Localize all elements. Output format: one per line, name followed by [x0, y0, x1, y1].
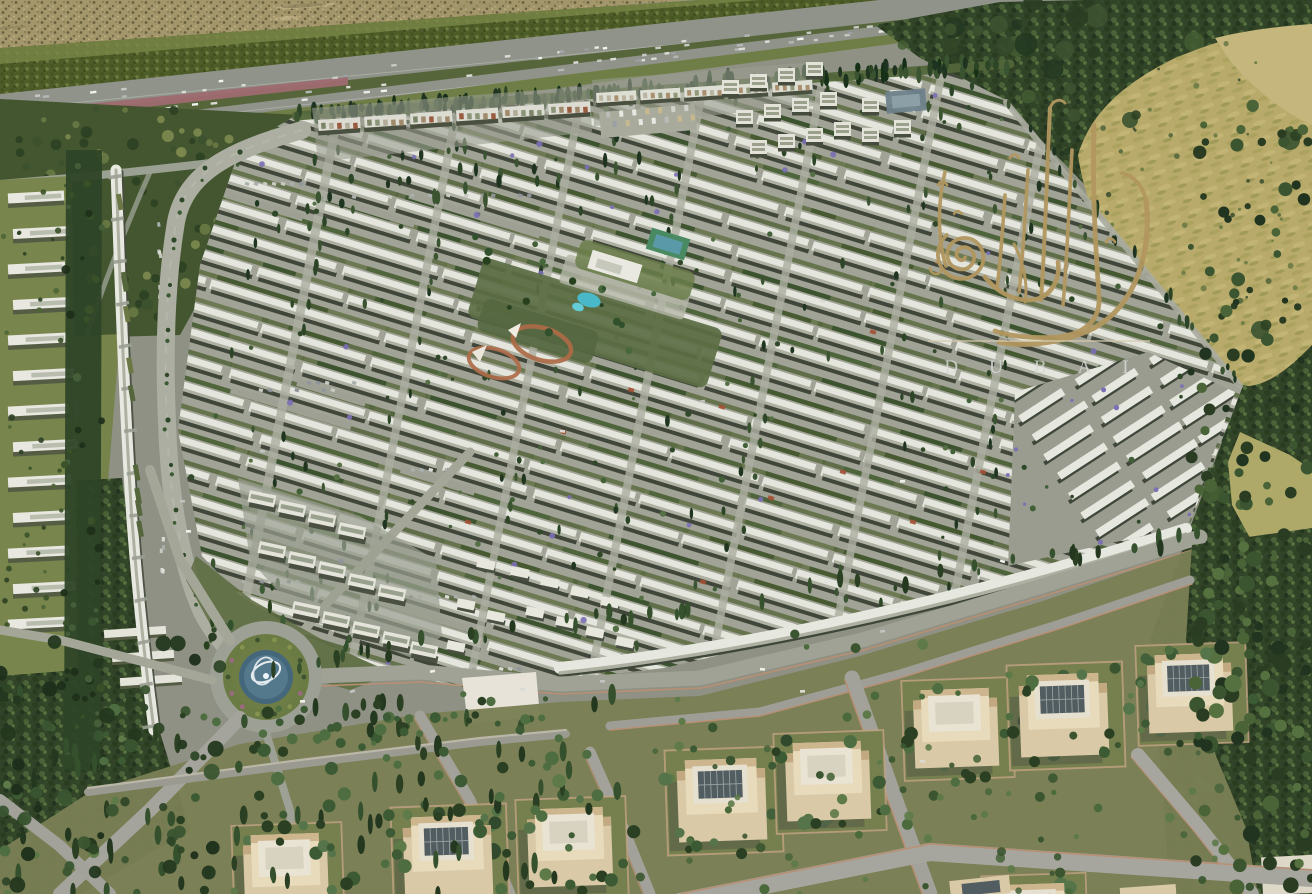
svg-text:DUBAI: DUBAI: [944, 357, 1159, 378]
